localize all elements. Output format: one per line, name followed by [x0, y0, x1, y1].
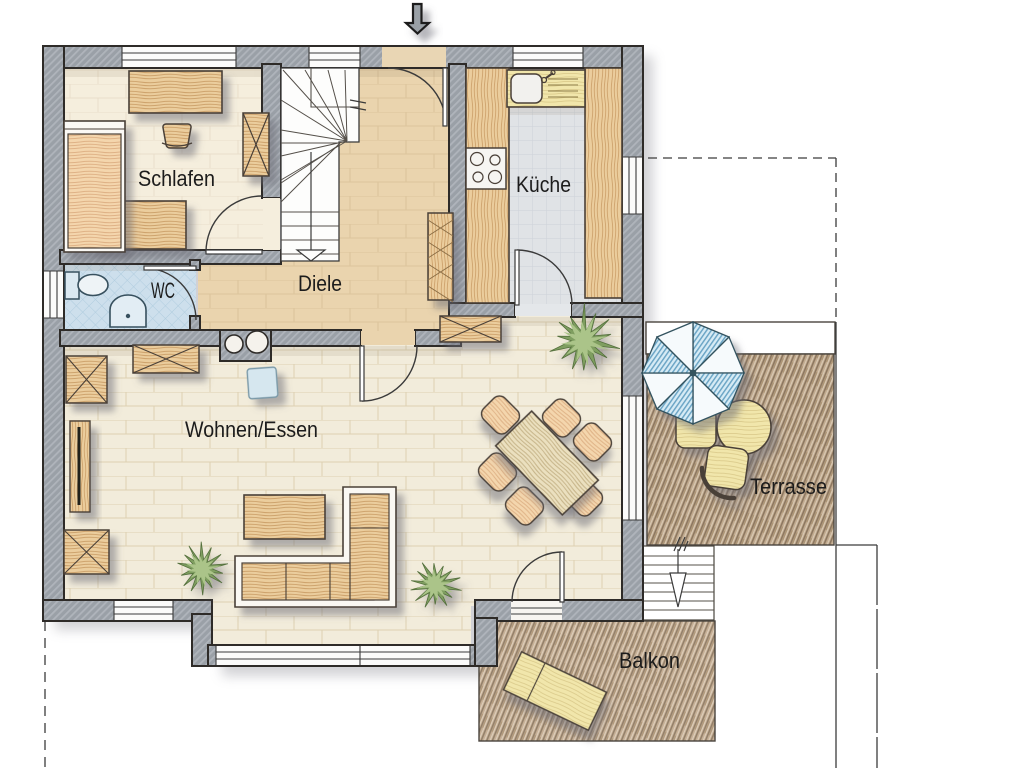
svg-text:Schlafen: Schlafen [138, 166, 215, 191]
svg-text:Terrasse: Terrasse [750, 474, 827, 499]
svg-text:WC: WC [151, 278, 175, 303]
svg-text:Balkon: Balkon [619, 648, 680, 673]
svg-text:Diele: Diele [298, 271, 342, 296]
svg-text:Wohnen/Essen: Wohnen/Essen [185, 417, 318, 442]
svg-text:Küche: Küche [516, 172, 571, 197]
